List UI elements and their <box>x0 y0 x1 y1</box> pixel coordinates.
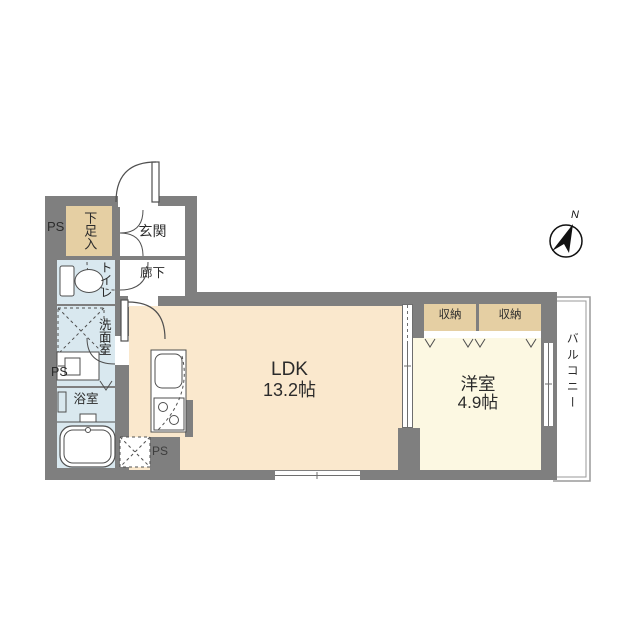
label-bathroom: 浴室 <box>57 393 115 407</box>
label-western-room: 洋室 4.9帖 <box>415 375 541 413</box>
label-entrance: 玄関 <box>120 224 185 239</box>
label-washroom: 洗面室 <box>96 318 110 356</box>
label-storage-left: 収納 <box>424 309 476 322</box>
western-room-name: 洋室 <box>415 375 541 394</box>
label-hallway: 廊下 <box>120 267 185 281</box>
ldk-size: 13.2帖 <box>227 381 352 401</box>
label-ps-top: PS <box>47 220 64 234</box>
window-south <box>275 471 360 480</box>
label-balcony: バルコニー <box>565 332 578 412</box>
wall-kitchen-pier <box>185 400 193 437</box>
label-ldk: LDK 13.2帖 <box>227 360 352 401</box>
label-toilet: トイレ <box>97 261 111 299</box>
washroom-door-opening <box>115 336 129 365</box>
western-room-size: 4.9帖 <box>415 394 541 413</box>
label-storage-right: 収納 <box>479 309 541 322</box>
label-ps-mid: PS <box>51 366 68 380</box>
wall-slide-pier <box>398 428 420 472</box>
storage-door-track <box>424 331 541 338</box>
label-compass-north: N <box>571 209 579 221</box>
floor-plan: PS 下足入 玄関 トイレ 廊下 洗面室 PS 浴室 LDK 13.2帖 PS … <box>0 0 640 640</box>
compass-icon <box>550 224 582 257</box>
label-shoe-storage: 下足入 <box>82 211 96 250</box>
label-ps-bottom: PS <box>152 445 168 458</box>
sliding-door <box>402 304 413 428</box>
ldk-name: LDK <box>227 360 352 381</box>
window-balcony <box>544 343 553 426</box>
